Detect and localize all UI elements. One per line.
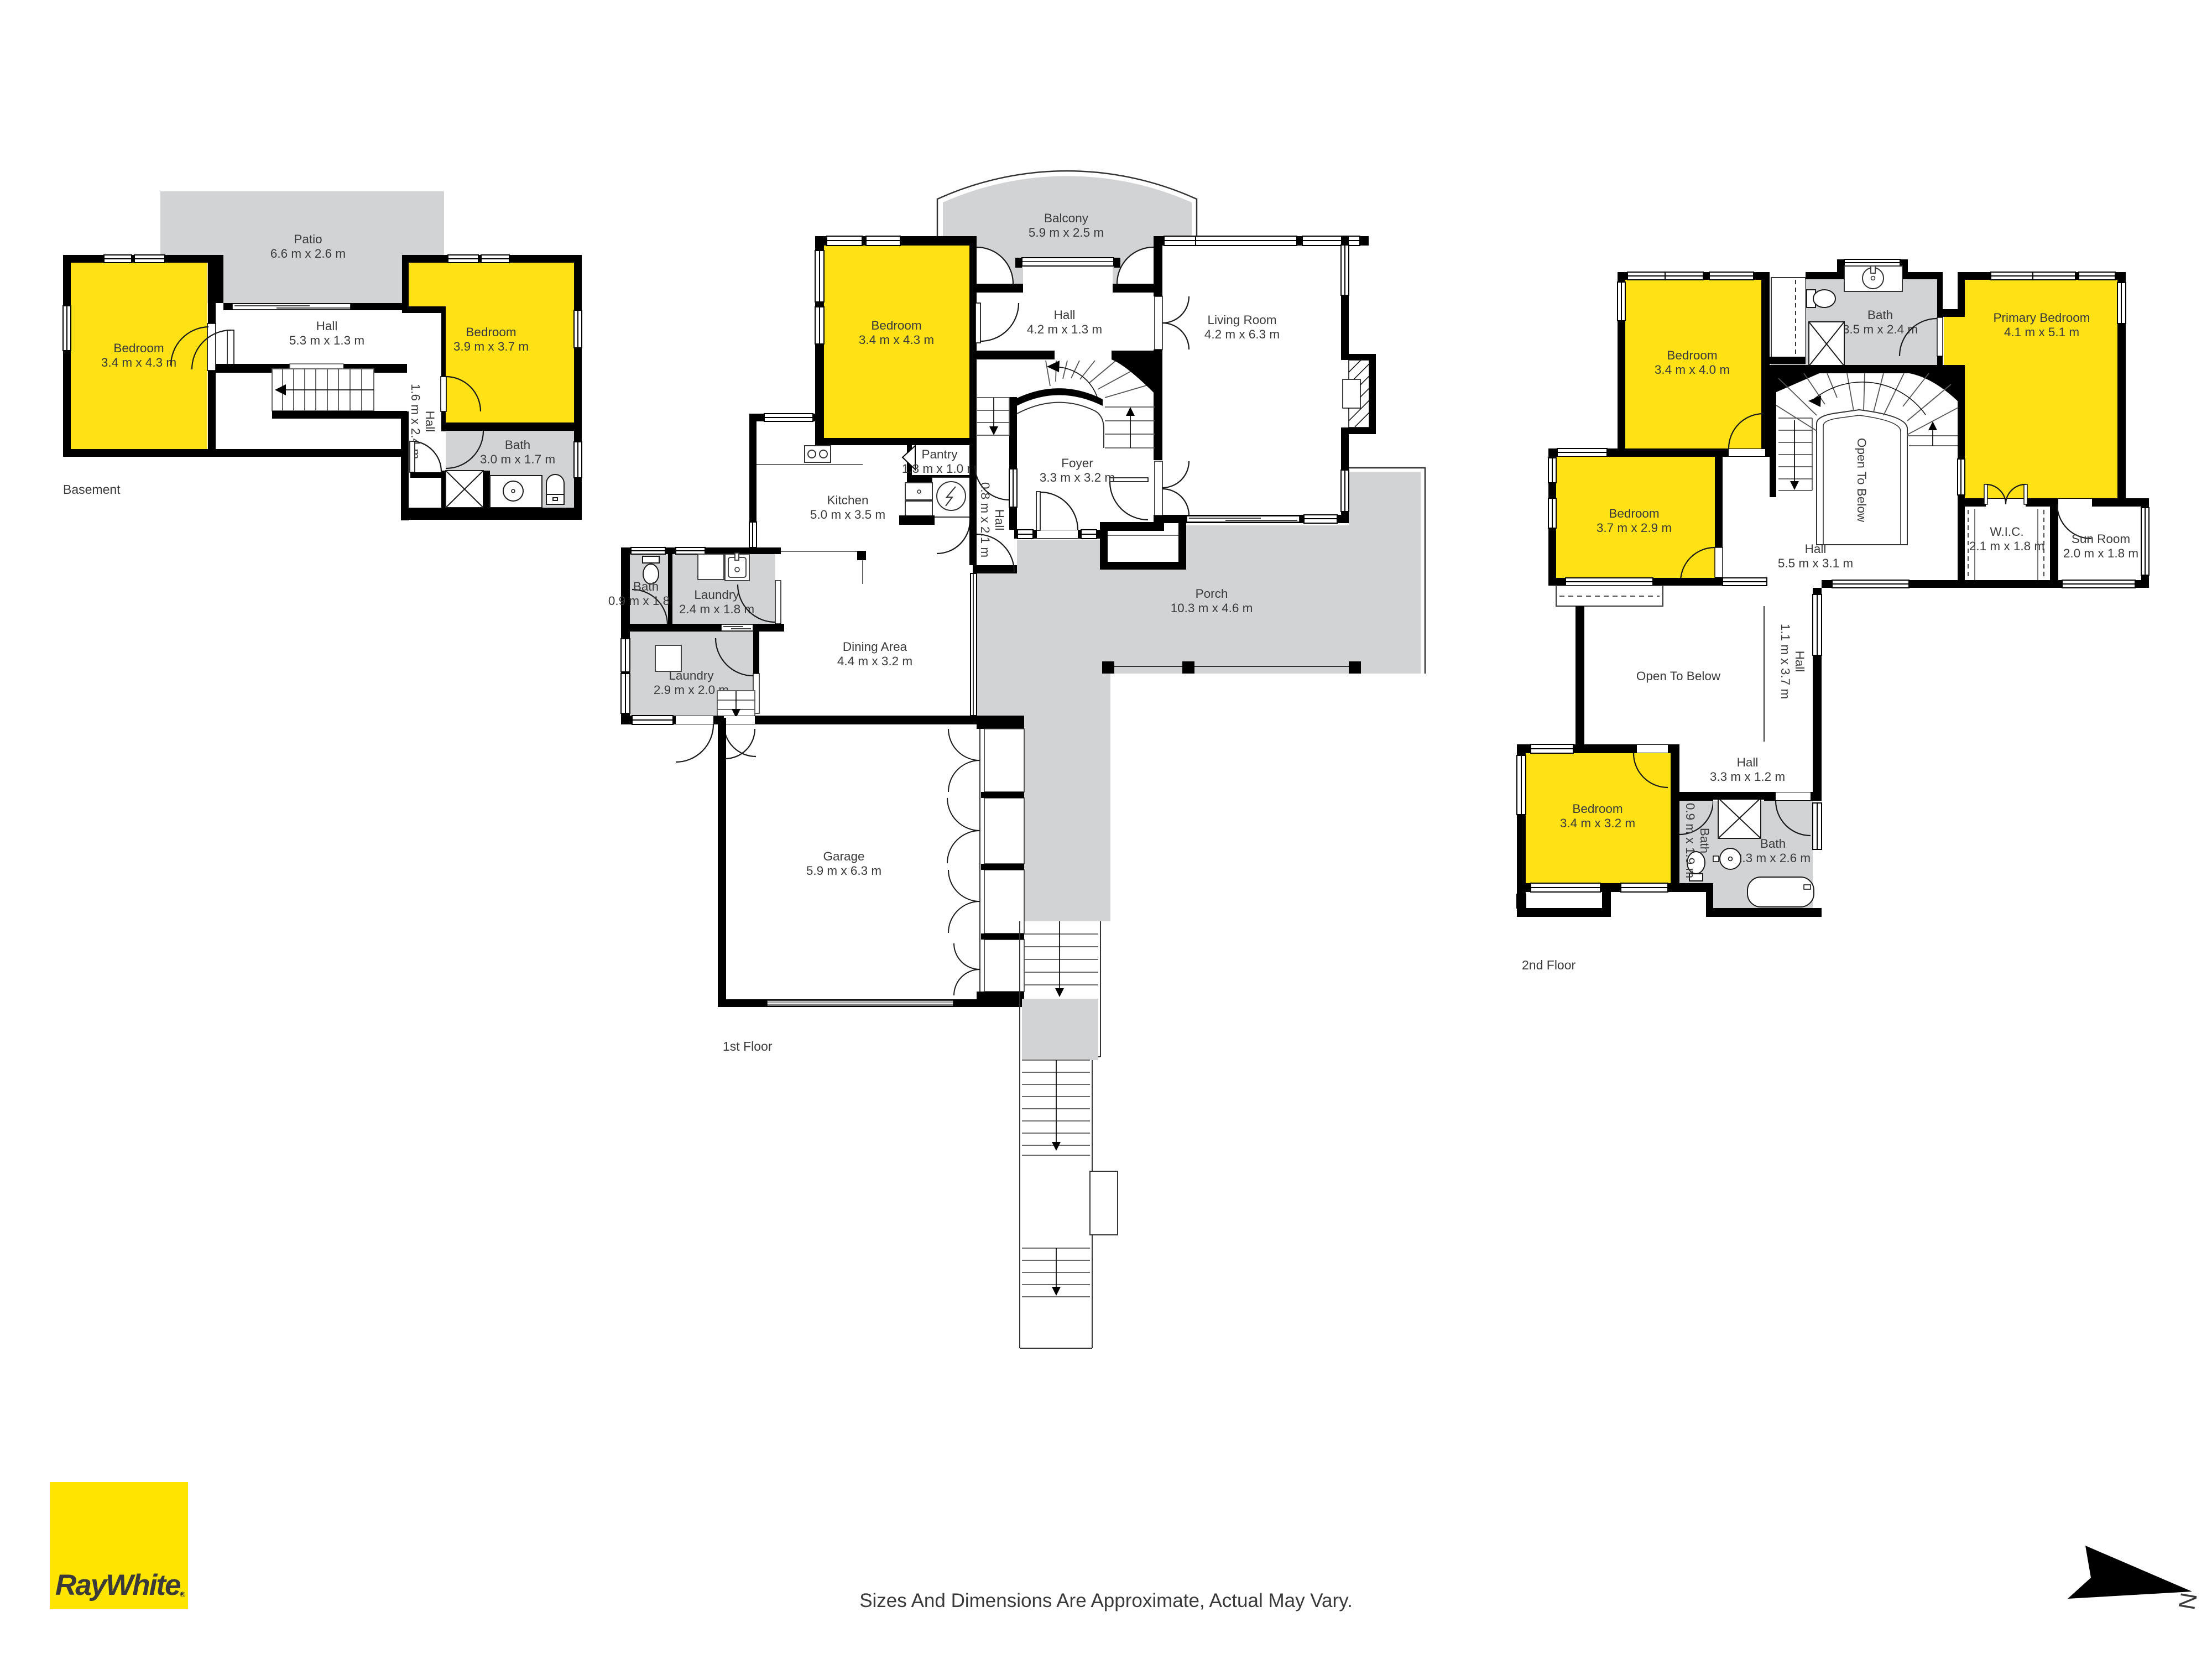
svg-text:2.0 m x 1.8 m: 2.0 m x 1.8 m [2063,546,2138,560]
svg-text:Hall: Hall [1793,651,1807,672]
svg-text:Bedroom: Bedroom [1572,802,1623,816]
svg-text:Pantry: Pantry [921,447,958,461]
svg-text:Hall: Hall [993,509,1006,531]
svg-text:3.4 m x 4.0 m: 3.4 m x 4.0 m [1655,363,1730,377]
svg-text:3.4 m x 4.3 m: 3.4 m x 4.3 m [101,356,176,369]
svg-text:Bedroom: Bedroom [466,325,516,339]
svg-text:Garage: Garage [823,849,864,863]
svg-text:4.2 m x 6.3 m: 4.2 m x 6.3 m [1204,327,1280,341]
svg-text:1.1 m x 3.7 m: 1.1 m x 3.7 m [1778,624,1792,699]
svg-text:3.7 m x 2.9 m: 3.7 m x 2.9 m [1597,521,1672,535]
svg-text:5.5 m x 3.1 m: 5.5 m x 3.1 m [1778,556,1853,570]
svg-text:5.0 m x 3.5 m: 5.0 m x 3.5 m [810,508,885,521]
svg-text:Basement: Basement [63,482,121,497]
svg-text:2.3 m x 2.6 m: 2.3 m x 2.6 m [1735,851,1811,865]
svg-text:Foyer: Foyer [1061,456,1093,470]
svg-text:5.9 m x 6.3 m: 5.9 m x 6.3 m [806,864,881,878]
svg-text:®: ® [180,1590,186,1599]
svg-text:Bath: Bath [633,580,659,593]
svg-text:0.9 m x 1.8 m: 0.9 m x 1.8 m [608,594,684,608]
svg-text:10.3 m x 4.6 m: 10.3 m x 4.6 m [1171,601,1253,615]
svg-text:1st Floor: 1st Floor [723,1039,773,1053]
svg-text:3.4 m x 4.3 m: 3.4 m x 4.3 m [859,333,934,347]
svg-text:6.6 m x 2.6 m: 6.6 m x 2.6 m [270,247,346,260]
svg-text:Patio: Patio [294,232,322,246]
svg-text:Bedroom: Bedroom [1667,348,1717,362]
svg-text:2.1 m x 1.8 m: 2.1 m x 1.8 m [1969,539,2044,553]
svg-text:Bath: Bath [505,438,530,452]
svg-text:0.9 m x 1.9 m: 0.9 m x 1.9 m [1683,803,1697,878]
svg-text:Hall: Hall [423,411,437,432]
svg-text:Porch: Porch [1196,587,1228,601]
svg-text:Hall: Hall [1737,755,1759,769]
svg-text:W.I.C.: W.I.C. [1990,525,2023,539]
svg-text:Dining Area: Dining Area [843,640,907,654]
svg-text:5.9 m x 2.5 m: 5.9 m x 2.5 m [1029,226,1104,239]
svg-text:Bedroom: Bedroom [1609,507,1659,520]
svg-text:4.4 m x 3.2 m: 4.4 m x 3.2 m [837,654,912,668]
svg-text:Bath: Bath [1698,828,1712,853]
svg-text:Bath: Bath [1760,837,1786,851]
svg-text:3.0 m x 1.7 m: 3.0 m x 1.7 m [480,452,555,466]
svg-text:2nd Floor: 2nd Floor [1522,958,1576,972]
svg-text:Bath: Bath [1867,308,1893,322]
svg-text:Living Room: Living Room [1207,313,1276,327]
svg-text:3.9 m x 3.7 m: 3.9 m x 3.7 m [453,340,529,353]
svg-text:Bedroom: Bedroom [871,319,921,332]
svg-text:Primary Bedroom: Primary Bedroom [1993,311,2090,325]
svg-text:3.3 m x 1.2 m: 3.3 m x 1.2 m [1710,770,1785,784]
svg-text:Sun Room: Sun Room [2072,532,2130,546]
svg-text:Bedroom: Bedroom [113,341,164,355]
svg-text:Hall: Hall [1054,308,1076,322]
svg-text:5.3 m x 1.3 m: 5.3 m x 1.3 m [289,333,364,347]
svg-text:Hall: Hall [316,319,338,333]
svg-text:Open To Below: Open To Below [1636,669,1721,683]
svg-text:Balcony: Balcony [1044,211,1089,225]
svg-text:0.8 m x 2.1 m: 0.8 m x 2.1 m [978,482,992,557]
svg-text:Laundry: Laundry [669,669,714,682]
svg-text:3.4 m x 3.2 m: 3.4 m x 3.2 m [1560,816,1635,830]
svg-text:4.1 m x 5.1 m: 4.1 m x 5.1 m [2004,325,2079,339]
svg-text:Open To Below: Open To Below [1855,438,1869,523]
svg-text:3.3 m x 3.2 m: 3.3 m x 3.2 m [1040,471,1115,484]
svg-text:1.3 m x 1.0 m: 1.3 m x 1.0 m [902,462,977,476]
svg-text:Hall: Hall [1805,542,1827,556]
svg-text:Sizes And Dimensions Are Appro: Sizes And Dimensions Are Approximate, Ac… [859,1590,1353,1611]
svg-text:4.2 m x 1.3 m: 4.2 m x 1.3 m [1027,322,1102,336]
svg-text:Kitchen: Kitchen [827,493,868,507]
svg-text:Laundry: Laundry [694,588,739,602]
svg-text:RayWhite.: RayWhite. [55,1569,184,1601]
